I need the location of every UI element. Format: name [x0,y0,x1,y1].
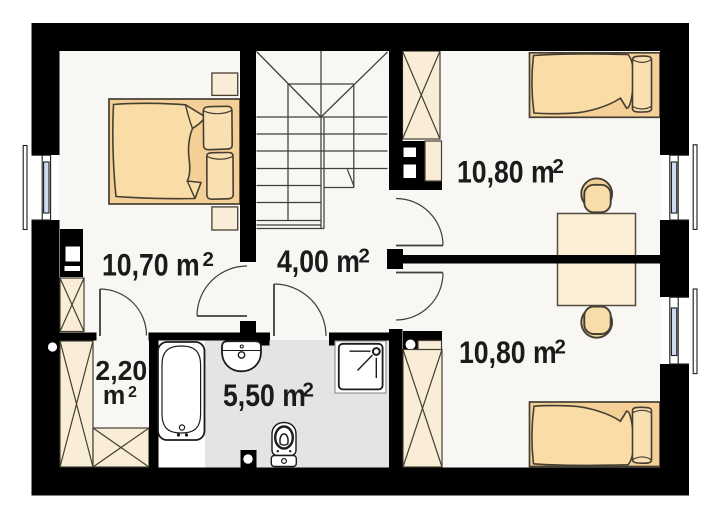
svg-text:2: 2 [359,245,370,268]
svg-text:10,80 m: 10,80 m [457,155,555,190]
svg-text:2: 2 [555,336,566,359]
svg-text:10,70 m: 10,70 m [102,248,200,283]
svg-text:m: m [103,381,125,410]
svg-text:2: 2 [303,379,314,402]
svg-text:5,50 m: 5,50 m [223,379,306,414]
svg-text:4,00 m: 4,00 m [277,245,360,280]
svg-text:10,80 m: 10,80 m [459,336,557,371]
svg-text:2: 2 [128,384,137,401]
svg-text:2: 2 [553,155,564,178]
svg-text:2: 2 [203,248,214,271]
